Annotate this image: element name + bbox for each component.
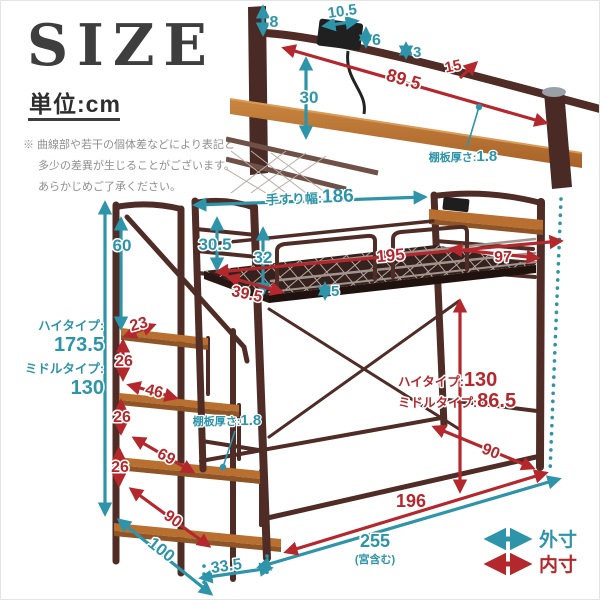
headboard-shelf-drawing bbox=[226, 6, 600, 193]
page-title: SIZE bbox=[27, 17, 216, 74]
dim-rise2: 26 bbox=[113, 409, 131, 426]
dim-outlet-height: 6 bbox=[372, 32, 381, 49]
dim-right-high: ハイタイプ:130 bbox=[398, 369, 497, 391]
dim-rail-above-shelf: 8 bbox=[270, 14, 279, 31]
dim-gap: 3 bbox=[413, 44, 421, 61]
dim-under-bed-depth: 90 bbox=[479, 441, 502, 463]
dim-headboard-height: 30 bbox=[300, 88, 319, 107]
dim-left-mid-value: 130 bbox=[71, 377, 104, 399]
legend-outer-label: 外寸 bbox=[539, 528, 577, 551]
legend: 外寸 内寸 bbox=[488, 528, 577, 576]
note-line-1: ※ 曲線部や若干の個体差などにより表記と bbox=[23, 135, 238, 156]
dim-guardrail-height: 32 bbox=[254, 248, 273, 267]
dim-rise3: 26 bbox=[111, 459, 129, 476]
dim-outlet-width: 10.5 bbox=[327, 1, 358, 22]
headboard-shelf-detail-diagram: 8 10.5 6 3 15 89.5 30 棚板厚さ:1.8 bbox=[226, 1, 600, 193]
dim-deck-lip: 5 bbox=[331, 283, 339, 300]
loft-bed-diagram: 手すり幅:186 60 30.5 32 5 ハイタイプ: 173.5 ミドルタイ… bbox=[11, 189, 600, 600]
unit-underline bbox=[28, 118, 120, 121]
dim-footboard-rail: 30.5 bbox=[198, 235, 231, 254]
dim-floor-inner-length: 196 bbox=[396, 491, 426, 511]
dim-shelf-length: 89.5 bbox=[384, 65, 423, 94]
dim-inner-width-head: 97 bbox=[494, 249, 512, 266]
dim-floor-outer-length: 255 bbox=[360, 531, 390, 551]
dim-inner-length: 195 bbox=[376, 245, 406, 266]
size-diagram-page: SIZE 単位:cm ※ 曲線部や若干の個体差などにより表記と 多少の差異が生じ… bbox=[0, 0, 600, 600]
label-left-high-type: ハイタイプ: bbox=[38, 318, 104, 333]
note-line-2: 多少の差異が生じることがございます。 bbox=[38, 156, 238, 177]
unit-label: 単位:cm bbox=[29, 85, 121, 119]
label-left-mid-type: ミドルタイプ: bbox=[25, 361, 104, 376]
dim-handrail-width: 手すり幅:186 bbox=[265, 189, 354, 210]
dim-left-high-value: 173.5 bbox=[54, 334, 104, 356]
dim-shelf-depth: 15 bbox=[443, 57, 463, 77]
dim-stair-rail-height: 60 bbox=[113, 236, 132, 255]
dim-right-mid: ミドルタイプ:86.5 bbox=[398, 390, 516, 412]
dim-rise1: 26 bbox=[115, 353, 133, 370]
legend-inner-label: 内寸 bbox=[539, 553, 577, 576]
dim-board-thickness: 棚板厚さ:1.8 bbox=[429, 148, 498, 165]
dim-floor-outer-note: (宮含む) bbox=[355, 552, 396, 566]
